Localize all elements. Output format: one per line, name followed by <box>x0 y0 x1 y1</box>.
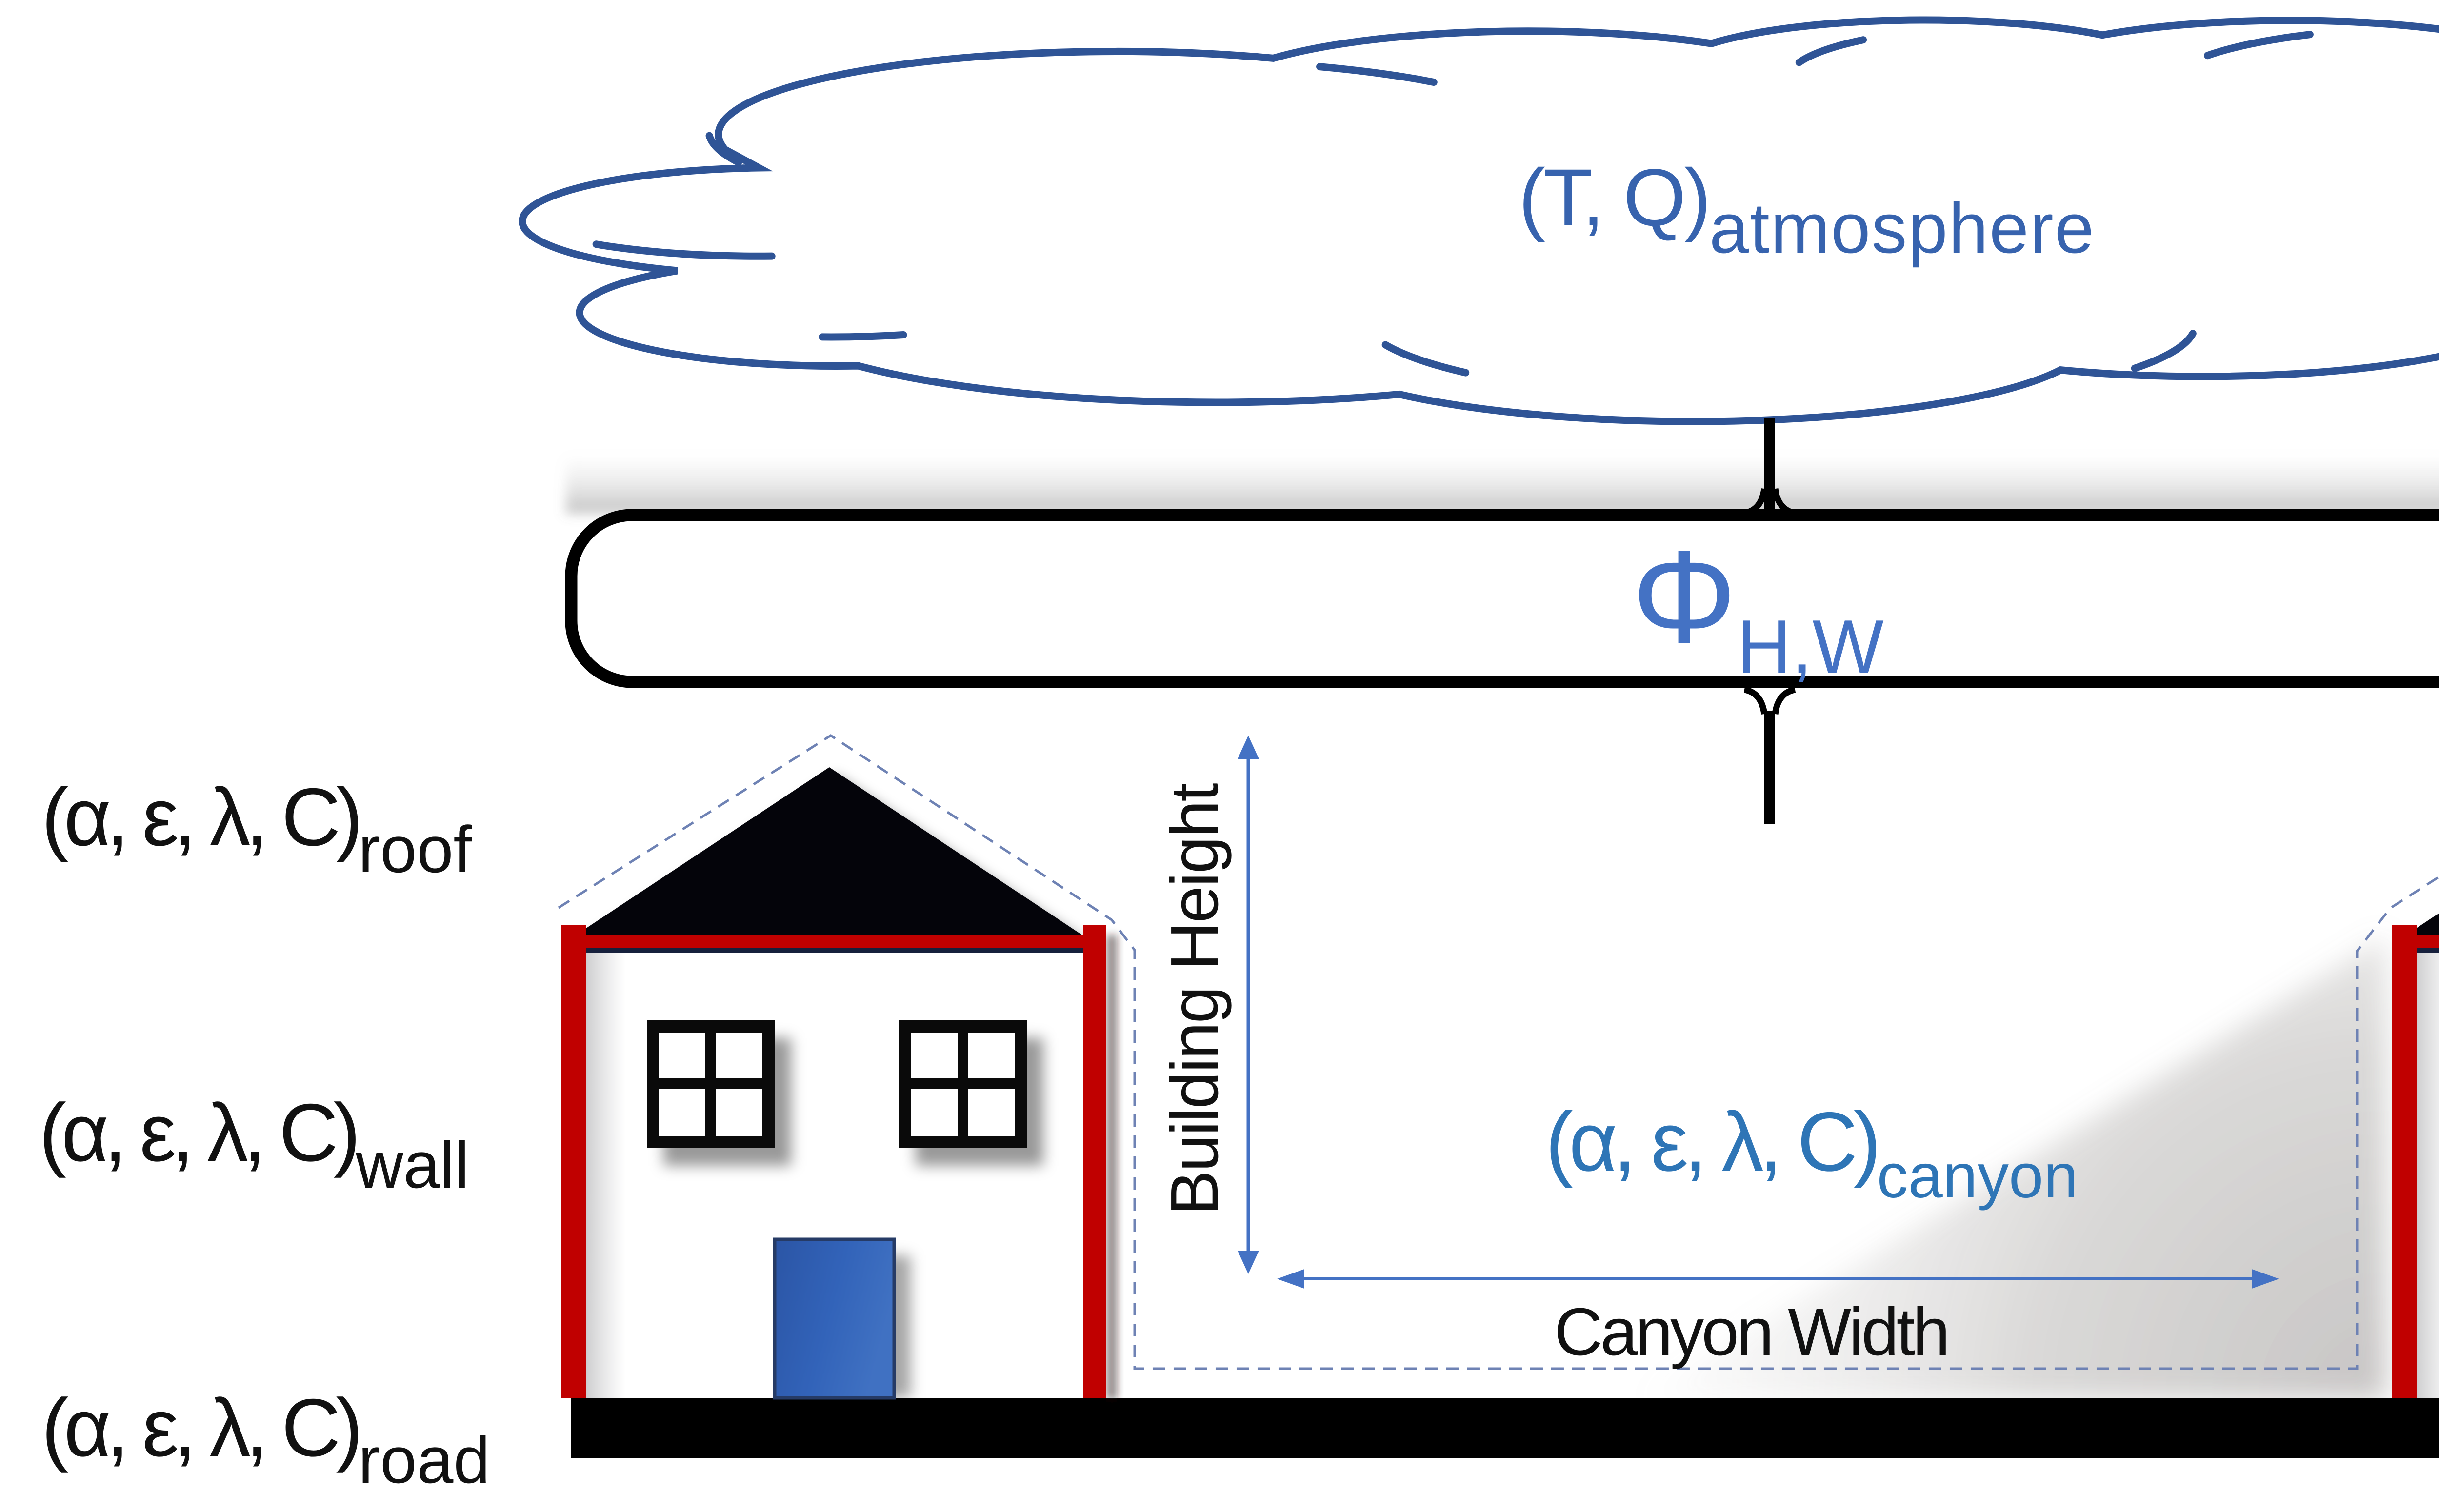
svg-text:(α, ε, λ, C)road: (α, ε, λ, C)road <box>41 1382 490 1497</box>
svg-text:Canyon Width: Canyon Width <box>1554 1294 1948 1370</box>
svg-text:(α, ε, λ, C)canyon: (α, ε, λ, C)canyon <box>1545 1095 2078 1211</box>
svg-text:(α, ε, λ, C)wall: (α, ε, λ, C)wall <box>39 1087 469 1202</box>
svg-text:Building Height: Building Height <box>1157 783 1232 1215</box>
svg-text:(α, ε, λ, C)roof: (α, ε, λ, C)roof <box>41 771 472 886</box>
